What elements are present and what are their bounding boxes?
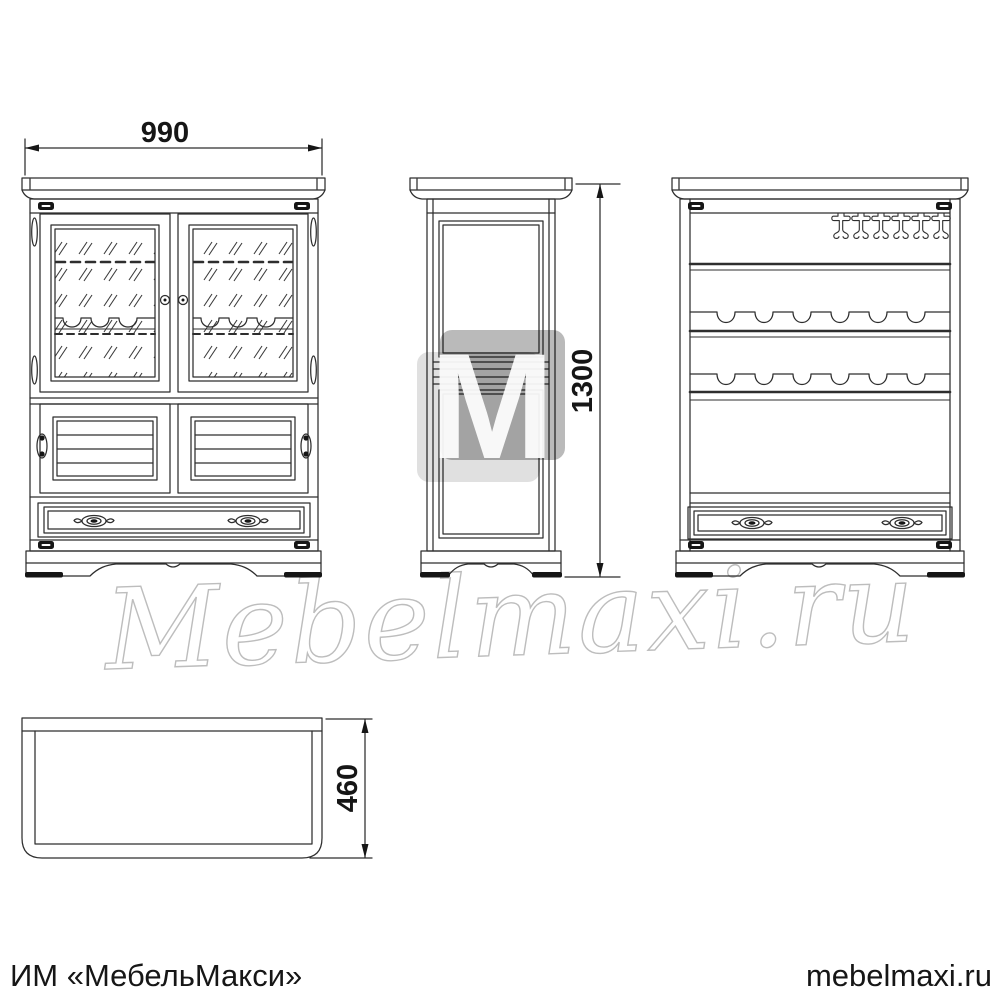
crown-molding	[672, 178, 968, 199]
arrowhead-left	[25, 145, 39, 152]
drawer-front	[38, 503, 310, 537]
footer-shop-name: ИМ «МебельМакси»	[10, 958, 302, 993]
stemware-rack	[832, 213, 950, 238]
lower-door-right	[178, 404, 308, 493]
corner-fitting-icon	[936, 202, 952, 210]
crown-molding	[410, 178, 572, 199]
arrowhead-right	[308, 145, 322, 152]
width-dimension: 990	[25, 117, 322, 175]
front-view	[22, 178, 325, 578]
wine-glass-icon	[892, 213, 910, 238]
crown-molding	[22, 178, 325, 199]
door-knobs	[161, 296, 188, 305]
side-pull-handle	[37, 434, 47, 458]
height-dimension: 1300	[565, 184, 620, 577]
width-dimension-label: 990	[141, 117, 189, 149]
corner-fitting-icon	[688, 541, 704, 549]
corner-fitting-icon	[936, 541, 952, 549]
arrowhead-up	[362, 719, 369, 733]
glass-door-right	[178, 214, 308, 392]
drawer-handle-icon	[732, 518, 772, 529]
bottle-rack-lower	[690, 374, 950, 400]
wine-glass-icon	[852, 213, 870, 238]
wine-glass-icon	[872, 213, 890, 238]
corner-fitting-icon	[294, 202, 310, 210]
drawer-handle-icon	[228, 516, 268, 527]
arrowhead-up	[597, 184, 604, 198]
top-view	[22, 718, 322, 858]
glass-pane	[193, 229, 293, 377]
corner-fitting-icon	[38, 541, 54, 549]
height-dimension-label: 1300	[567, 349, 599, 414]
depth-dimension-label: 460	[332, 764, 364, 812]
corner-fitting-icon	[294, 541, 310, 549]
drawer-handle-icon	[74, 516, 114, 527]
glass-pane	[55, 229, 155, 377]
glass-door-left	[40, 214, 170, 392]
corner-fitting-icon	[688, 202, 704, 210]
lower-door-left	[40, 404, 170, 493]
drawer-front	[688, 507, 952, 539]
wine-glass-icon	[912, 213, 930, 238]
footer-site-url: mebelmaxi.ru	[806, 958, 992, 993]
watermark-script-text: Mebelmaxi.ru	[101, 538, 919, 696]
depth-dimension: 460	[310, 719, 372, 858]
wine-glass-icon	[832, 213, 850, 238]
bottle-rack-upper	[690, 312, 950, 337]
furniture-technical-drawing: Mebelmaxi.ru 990	[0, 0, 1000, 1000]
wine-glass-icon	[932, 213, 950, 238]
corner-fitting-icon	[38, 202, 54, 210]
side-pull-handle	[301, 434, 311, 458]
internal-view	[672, 178, 968, 578]
technical-drawing-page: Mebelmaxi.ru 990	[0, 0, 1000, 1000]
logo-letter: M	[430, 322, 555, 490]
watermark-logo: M	[417, 322, 565, 490]
arrowhead-down	[362, 844, 369, 858]
drawer-handle-icon	[882, 518, 922, 529]
